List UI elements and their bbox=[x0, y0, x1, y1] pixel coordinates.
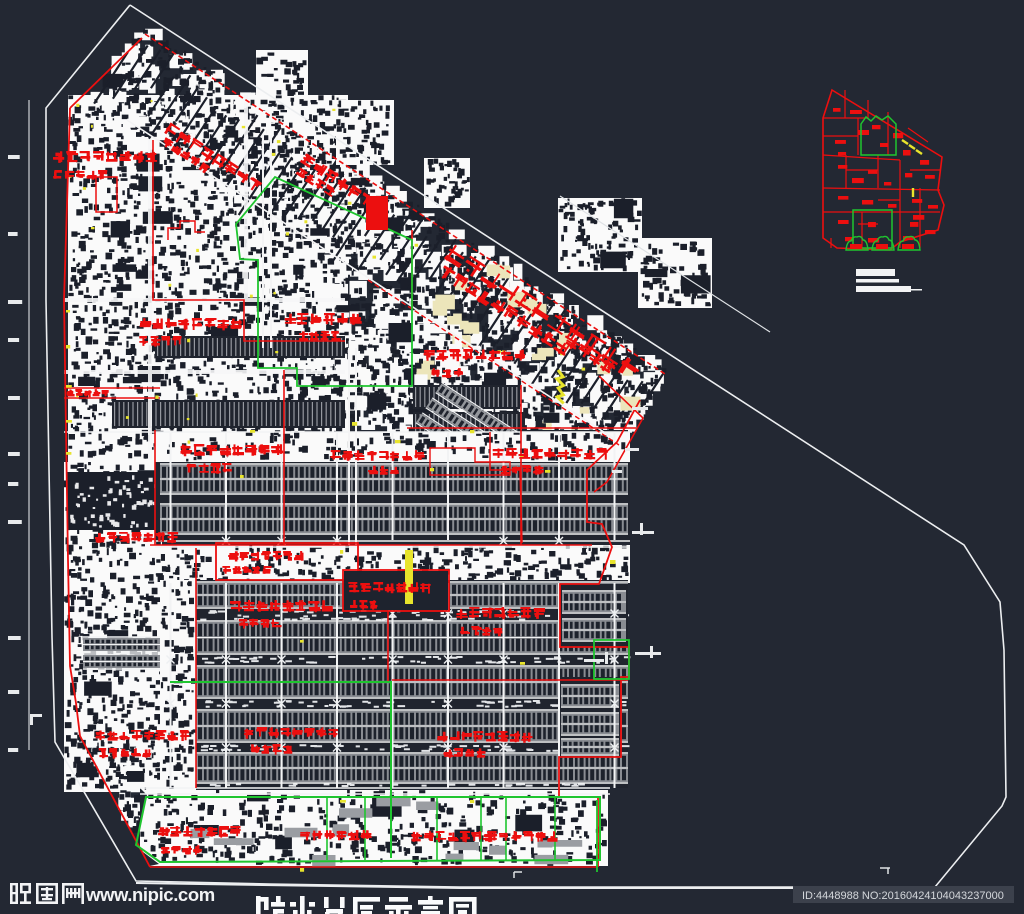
svg-text:ID:4448988 NO:2016042410404323: ID:4448988 NO:20160424104043237000 bbox=[802, 890, 1004, 902]
svg-text:www.nipic.com: www.nipic.com bbox=[85, 884, 215, 905]
